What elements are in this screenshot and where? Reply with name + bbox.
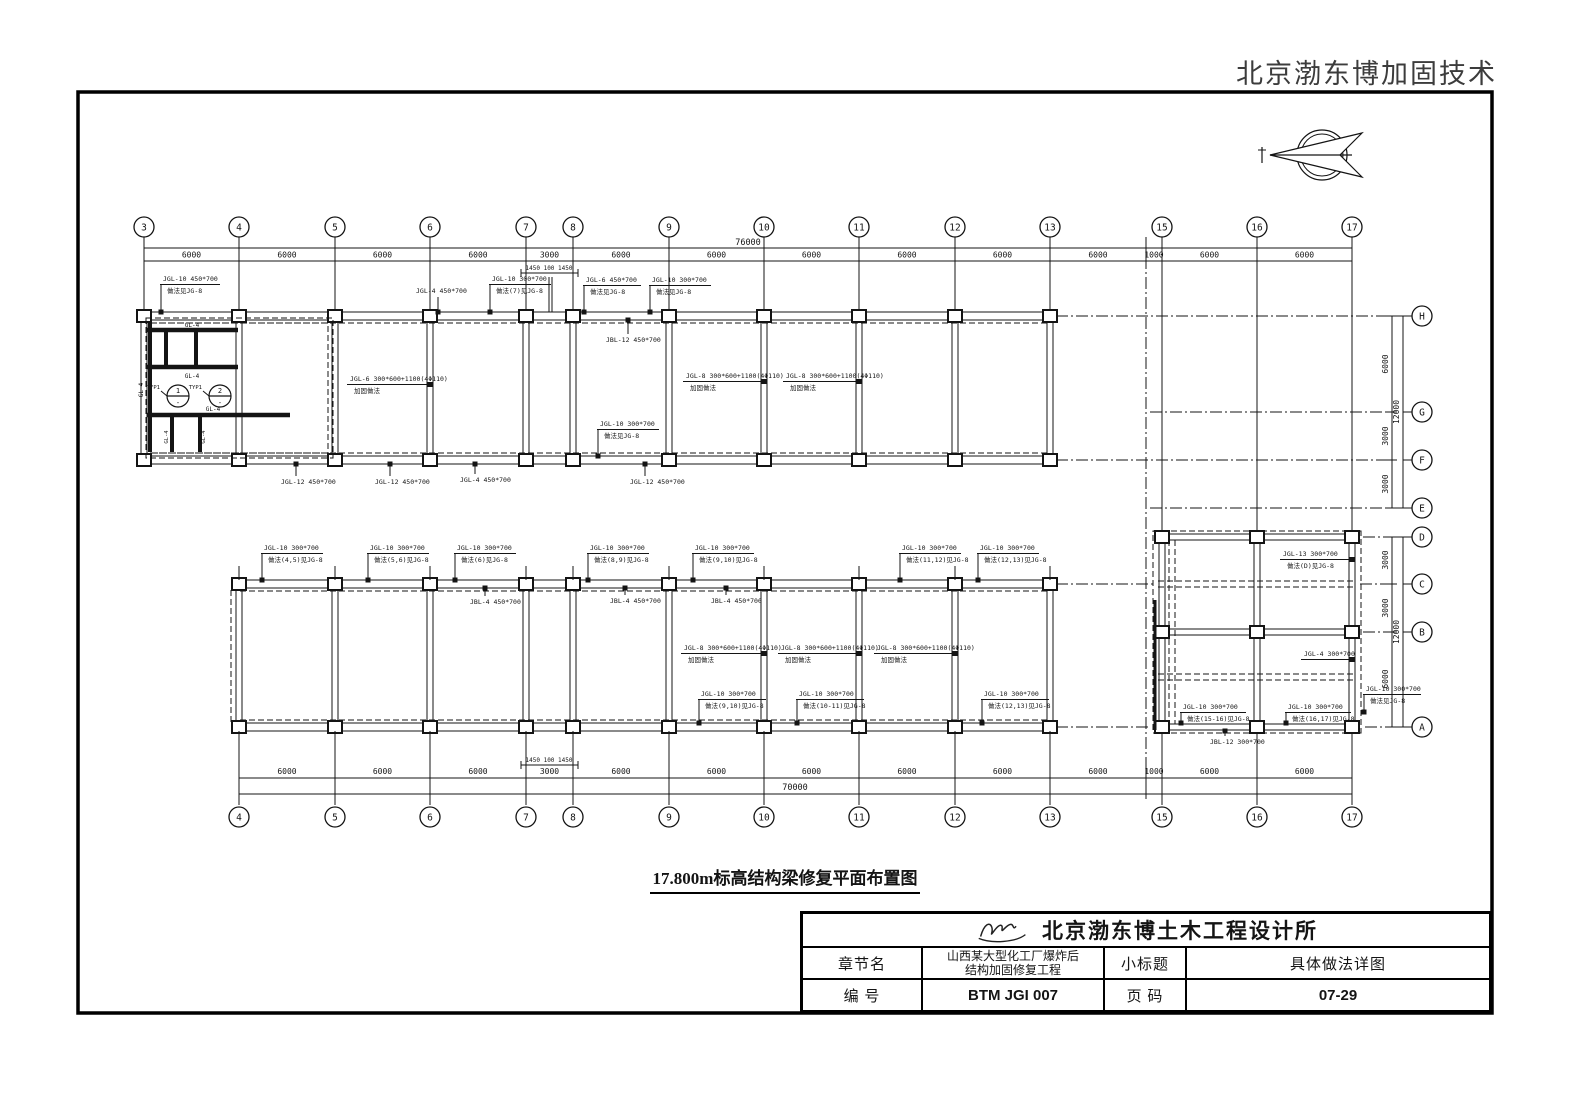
grid-bubble-label: 8 xyxy=(570,812,576,823)
beam-label-sub: 加固做法 xyxy=(790,383,817,392)
beam-label-sub: 做法(9,10)见JG-8 xyxy=(705,701,764,710)
column-mark xyxy=(1345,531,1359,543)
grid-bubble-label: A xyxy=(1419,722,1425,733)
column-mark xyxy=(852,310,866,322)
grid-bubble-label: E xyxy=(1419,503,1425,514)
dim-value: 6000 xyxy=(802,251,821,260)
dim-value: 6000 xyxy=(707,767,726,776)
number-label: 编 号 xyxy=(803,980,923,1010)
grid-bubble-label: 12 xyxy=(949,812,960,823)
beam-label-sub: 做法(15-16)见JG-8 xyxy=(1187,714,1250,723)
grid-bubble-label: B xyxy=(1419,627,1425,638)
beam-label: JGL-10 300*700 xyxy=(1366,685,1421,693)
beam-label: JGL-10 300*700 xyxy=(652,276,707,284)
column-mark xyxy=(1250,531,1264,543)
beam-label: JGL-10 300*700 xyxy=(264,544,319,552)
column-mark xyxy=(1250,626,1264,638)
grid-bubble-label: 13 xyxy=(1044,222,1055,233)
column-mark xyxy=(566,310,580,322)
beam-label: JGL-10 300*700 xyxy=(701,690,756,698)
leader-dot xyxy=(582,310,587,315)
dim-value: 6000 xyxy=(468,251,487,260)
column-mark xyxy=(519,310,533,322)
beam-label: JGL-8 300*600+1100(4Φ110) xyxy=(781,644,879,652)
grid-bubble-label: 6 xyxy=(427,222,433,233)
column-mark xyxy=(137,454,151,466)
beam-label: JBL-12 450*700 xyxy=(606,336,661,344)
beam-label: JGL-4 300*700 xyxy=(1304,650,1355,658)
column-mark xyxy=(1155,721,1169,733)
beam-label-sub: 做法(5,6)见JG-8 xyxy=(374,555,429,564)
beam-label-sub: 做法(12,13)见JG-8 xyxy=(988,701,1051,710)
bottom-grid-dimensions: 4567891011121315161760006000600030006000… xyxy=(229,757,1362,827)
grid-bubble-label: 6 xyxy=(427,812,433,823)
column-mark xyxy=(662,310,676,322)
watermark: 北京渤东博加固技术 xyxy=(1236,52,1497,91)
leader-dot xyxy=(648,310,653,315)
beam-label: JGL-12 450*700 xyxy=(375,478,430,486)
title-block-row-2: 编 号 BTM JGI 007 页 码 07-29 xyxy=(803,980,1489,1010)
beam-label: JGL-12 450*700 xyxy=(281,478,336,486)
dim-value: 6000 xyxy=(1295,251,1314,260)
section-number: 2 xyxy=(218,387,222,395)
dim-value: 6000 xyxy=(1088,251,1107,260)
title-block: 北京渤东博土木工程设计所 章节名 山西某大型化工厂爆炸后 结构加固修复工程 小标… xyxy=(800,911,1492,1013)
beam-label-sub: 做法(12,13)见JG-8 xyxy=(984,555,1047,564)
lower-beam-labels: JGL-10 300*700做法(4,5)见JG-8JGL-10 300*700… xyxy=(260,544,1051,726)
chapter-value: 山西某大型化工厂爆炸后 结构加固修复工程 xyxy=(923,948,1105,978)
grid-bubble-label: 15 xyxy=(1156,222,1167,233)
leader-dot xyxy=(388,462,393,467)
column-mark xyxy=(948,310,962,322)
beam-label-sub: 加固做法 xyxy=(881,655,908,664)
right-beam-labels: JGL-13 300*700做法(D)见JG-8JGL-4 300*700JGL… xyxy=(1179,550,1422,746)
grid-bubble-label: 16 xyxy=(1251,812,1263,823)
leader-dot xyxy=(976,578,981,583)
leader-dot xyxy=(697,721,702,726)
chapter-value-line1: 山西某大型化工厂爆炸后 xyxy=(947,949,1079,963)
beam-label-sub: 做法(8,9)见JG-8 xyxy=(594,555,649,564)
beam-label: JGL-12 450*700 xyxy=(630,478,685,486)
beam-label: JGL-10 300*700 xyxy=(1183,703,1238,711)
company-logo-icon xyxy=(974,916,1032,944)
beam-label: JGL-10 300*700 xyxy=(984,690,1039,698)
beam-label: JBL-4 450*700 xyxy=(470,598,521,606)
leader-dot xyxy=(294,462,299,467)
beam-label-sub: 做法(11,12)见JG-8 xyxy=(906,555,969,564)
column-mark xyxy=(1345,626,1359,638)
column-mark xyxy=(519,454,533,466)
grid-bubble-label: 10 xyxy=(758,222,770,233)
column-mark xyxy=(423,454,437,466)
dim-sub: 1450 100 1450 xyxy=(526,265,573,272)
beam-label: JGL-10 300*700 xyxy=(370,544,425,552)
dim-value: 6000 xyxy=(277,251,296,260)
leader-dot xyxy=(1284,721,1289,726)
drawing-title: 17.800m标高结构梁修复平面布置图 xyxy=(650,864,921,894)
leader-dot xyxy=(691,578,696,583)
grid-bubble-label: 17 xyxy=(1346,222,1357,233)
grid-bubble-label: 8 xyxy=(570,222,576,233)
grid-bubble-label: G xyxy=(1419,407,1425,418)
leader-dot xyxy=(762,651,767,656)
beam-label: JGL-4 450*700 xyxy=(460,476,511,484)
leader-dot xyxy=(1223,729,1228,734)
column-mark xyxy=(1043,310,1057,322)
leader-dot xyxy=(857,651,862,656)
leader-dot xyxy=(1362,710,1367,715)
leader-dot xyxy=(1350,657,1355,662)
dim-value: 6000 xyxy=(1200,251,1219,260)
grid-bubble-label: 11 xyxy=(853,812,865,823)
dim-value: 3000 xyxy=(540,251,559,260)
column-mark xyxy=(1250,721,1264,733)
beam-label: JGL-10 300*700 xyxy=(457,544,512,552)
dim-total: 12000 xyxy=(1392,400,1401,424)
leader-dot xyxy=(596,454,601,459)
grid-bubble-label: 12 xyxy=(949,222,960,233)
dim-total: 70000 xyxy=(782,783,808,793)
beam-label-sub: 做法(4,5)见JG-8 xyxy=(268,555,323,564)
beam-label: JBL-12 300*700 xyxy=(1210,738,1265,746)
beam-label: JGL-8 300*600+1100(4Φ110) xyxy=(686,372,784,380)
beam-label: JGL-10 300*700 xyxy=(492,275,547,283)
leader-dot xyxy=(980,721,985,726)
column-mark xyxy=(948,454,962,466)
leader-dot xyxy=(626,318,631,323)
leader-dot xyxy=(453,578,458,583)
leader-dot xyxy=(428,382,433,387)
leader-dot xyxy=(483,586,488,591)
dim-value: 6000 xyxy=(373,767,392,776)
subtitle-label: 小标题 xyxy=(1105,948,1187,978)
beam-label-sub: 做法(16,17)见JG-8 xyxy=(1292,714,1355,723)
beam-label: JGL-10 300*700 xyxy=(1288,703,1343,711)
dim-value: 6000 xyxy=(182,251,201,260)
grid-bubble-label: D xyxy=(1419,532,1425,543)
leader-dot xyxy=(857,379,862,384)
beam-label: JGL-10 300*700 xyxy=(590,544,645,552)
chapter-label: 章节名 xyxy=(803,948,923,978)
lower-plan xyxy=(231,537,1394,805)
dim-value: 1000 xyxy=(1144,251,1163,260)
grid-bubble-label: 11 xyxy=(853,222,865,233)
dim-value: 3000 xyxy=(1381,426,1390,445)
grid-bubble-label: 5 xyxy=(332,812,338,823)
grid-bubble-label: C xyxy=(1419,579,1425,590)
beam-label: JGL-10 300*700 xyxy=(695,544,750,552)
beam-label-sub: 做法(7)见JG-8 xyxy=(496,286,543,295)
beam-label: GL-4 xyxy=(138,382,145,397)
dim-value: 6000 xyxy=(897,251,916,260)
grid-bubble-label: 7 xyxy=(523,812,529,823)
column-mark xyxy=(757,454,771,466)
leader-dot xyxy=(953,651,958,656)
beam-label-sub: 加固做法 xyxy=(690,383,717,392)
beam-label: JGL-8 300*600+1100(4Φ110) xyxy=(877,644,975,652)
right-structure xyxy=(1153,531,1361,805)
dim-value: 6000 xyxy=(468,767,487,776)
leader-dot xyxy=(795,721,800,726)
beam-label: GL-4 xyxy=(164,430,170,444)
beam-label: JGL-8 300*600+1100(4Φ110) xyxy=(786,372,884,380)
drawing-title-wrap: 17.800m标高结构梁修复平面布置图 xyxy=(640,864,930,894)
beam-label-sub: 做法见JG-8 xyxy=(604,431,639,440)
dim-total: 76000 xyxy=(735,238,761,248)
beam-label-sub: 做法(D)见JG-8 xyxy=(1287,561,1334,570)
dim-value: 6000 xyxy=(373,251,392,260)
grid-bubble-label: 4 xyxy=(236,812,242,823)
column-mark xyxy=(757,310,771,322)
grid-bubble-label: F xyxy=(1419,455,1425,466)
column-mark xyxy=(137,310,151,322)
column-mark xyxy=(328,454,342,466)
right-dims-upper: 60003000300012000HGFE xyxy=(1381,306,1432,518)
leader-dot xyxy=(436,310,441,315)
dim-value: 6000 xyxy=(277,767,296,776)
column-mark xyxy=(1155,626,1169,638)
chapter-value-line2: 结构加固修复工程 xyxy=(947,963,1079,977)
top-grid-dimensions: 3456789101112131516176000600060006000300… xyxy=(134,217,1362,770)
grid-bubble-label: 9 xyxy=(666,222,672,233)
grid-bubble-label: 5 xyxy=(332,222,338,233)
beam-label: JBL-4 450*700 xyxy=(711,597,762,605)
typ-label: TYP1 xyxy=(147,385,160,391)
dim-value: 6000 xyxy=(897,767,916,776)
dim-value: 3000 xyxy=(1381,550,1390,569)
beam-label-sub: 做法见JG-8 xyxy=(167,286,202,295)
grid-bubble-label: 9 xyxy=(666,812,672,823)
column-mark xyxy=(852,454,866,466)
grid-bubble-label: 10 xyxy=(758,812,770,823)
dim-value: 3000 xyxy=(540,767,559,776)
column-mark xyxy=(423,310,437,322)
beam-label: JGL-10 300*700 xyxy=(902,544,957,552)
beam-label-sub: 做法见JG-8 xyxy=(656,287,691,296)
dim-value: 6000 xyxy=(707,251,726,260)
beam-label: JGL-8 300*600+1100(4Φ110) xyxy=(684,644,782,652)
beam-label: GL-4 xyxy=(206,406,221,413)
leader-dot xyxy=(366,578,371,583)
number-value: BTM JGI 007 xyxy=(923,980,1105,1010)
beam-label: JGL-10 300*700 xyxy=(799,690,854,698)
column-mark xyxy=(232,310,246,322)
beam-label: JGL-6 450*700 xyxy=(586,276,637,284)
section-ref: - xyxy=(176,399,180,407)
section-number: 1 xyxy=(176,387,180,395)
leader-dot xyxy=(623,586,628,591)
beam-label: GL-4 xyxy=(185,373,200,380)
grid-bubble-label: 17 xyxy=(1346,812,1357,823)
grid-bubble-label: 7 xyxy=(523,222,529,233)
dim-value: 6000 xyxy=(1295,767,1314,776)
beam-label-sub: 做法见JG-8 xyxy=(1370,696,1405,705)
beam-label: JGL-6 300*600+1100(4Φ110) xyxy=(350,375,448,383)
beam-label: JGL-13 300*700 xyxy=(1283,550,1338,558)
dim-value: 6000 xyxy=(1200,767,1219,776)
grid-bubble-label: 3 xyxy=(141,222,147,233)
column-mark xyxy=(328,310,342,322)
column-mark xyxy=(1155,531,1169,543)
leader-dot xyxy=(159,310,164,315)
dim-value: 3000 xyxy=(1381,598,1390,617)
leader-dot xyxy=(643,462,648,467)
leader-dot xyxy=(898,578,903,583)
beam-label: JGL-10 300*700 xyxy=(600,420,655,428)
leader-dot xyxy=(1350,557,1355,562)
dim-value: 6000 xyxy=(1088,767,1107,776)
typ-label: TYP1 xyxy=(189,385,202,391)
beam-label-sub: 加固做法 xyxy=(354,386,381,395)
beam-label-sub: 做法见JG-8 xyxy=(590,287,625,296)
beam-label: GL-4 xyxy=(185,322,200,329)
leader-dot xyxy=(762,379,767,384)
beam-label-sub: 做法(6)见JG-8 xyxy=(461,555,508,564)
dim-value: 3000 xyxy=(1381,474,1390,493)
dim-value: 6000 xyxy=(993,251,1012,260)
title-block-row-1: 章节名 山西某大型化工厂爆炸后 结构加固修复工程 小标题 具体做法详图 xyxy=(803,948,1489,980)
company-name: 北京渤东博土木工程设计所 xyxy=(1042,915,1318,945)
leader-dot xyxy=(473,462,478,467)
leader-dot xyxy=(724,586,729,591)
dim-value: 6000 xyxy=(1381,354,1390,373)
grid-bubble-label: 16 xyxy=(1251,222,1263,233)
leader-dot xyxy=(586,578,591,583)
grid-bubble-label: H xyxy=(1419,311,1425,322)
dim-sub: 1450 100 1450 xyxy=(526,757,573,764)
beam-label-sub: 做法(10-11)见JG-8 xyxy=(803,701,866,710)
column-mark xyxy=(1043,454,1057,466)
north-arrow-icon xyxy=(1258,130,1362,180)
leader-dot xyxy=(1179,721,1184,726)
dim-value: 6000 xyxy=(611,251,630,260)
beam-label: JGL-10 300*700 xyxy=(980,544,1035,552)
page-value: 07-29 xyxy=(1187,980,1489,1010)
leader-dot xyxy=(488,310,493,315)
beam-label: JGL-4 450*700 xyxy=(416,287,467,295)
subtitle-value: 具体做法详图 xyxy=(1187,948,1489,978)
column-mark xyxy=(662,454,676,466)
beam-label: JGL-10 450*700 xyxy=(163,275,218,283)
beam-label-sub: 做法(9,10)见JG-8 xyxy=(699,555,758,564)
column-mark xyxy=(566,454,580,466)
beam-label-sub: 加固做法 xyxy=(688,655,715,664)
dim-value: 1000 xyxy=(1144,767,1163,776)
page-label: 页 码 xyxy=(1105,980,1187,1010)
grid-bubble-label: 15 xyxy=(1156,812,1167,823)
dim-value: 6000 xyxy=(993,767,1012,776)
column-mark xyxy=(232,454,246,466)
beam-label-sub: 加固做法 xyxy=(785,655,812,664)
grid-bubble-label: 4 xyxy=(236,222,242,233)
grid-bubble-label: 13 xyxy=(1044,812,1055,823)
title-block-header: 北京渤东博土木工程设计所 xyxy=(803,914,1489,948)
beam-label: GL-4 xyxy=(201,430,207,444)
dim-value: 6000 xyxy=(611,767,630,776)
dim-value: 6000 xyxy=(802,767,821,776)
beam-label: JBL-4 450*700 xyxy=(610,597,661,605)
leader-dot xyxy=(260,578,265,583)
